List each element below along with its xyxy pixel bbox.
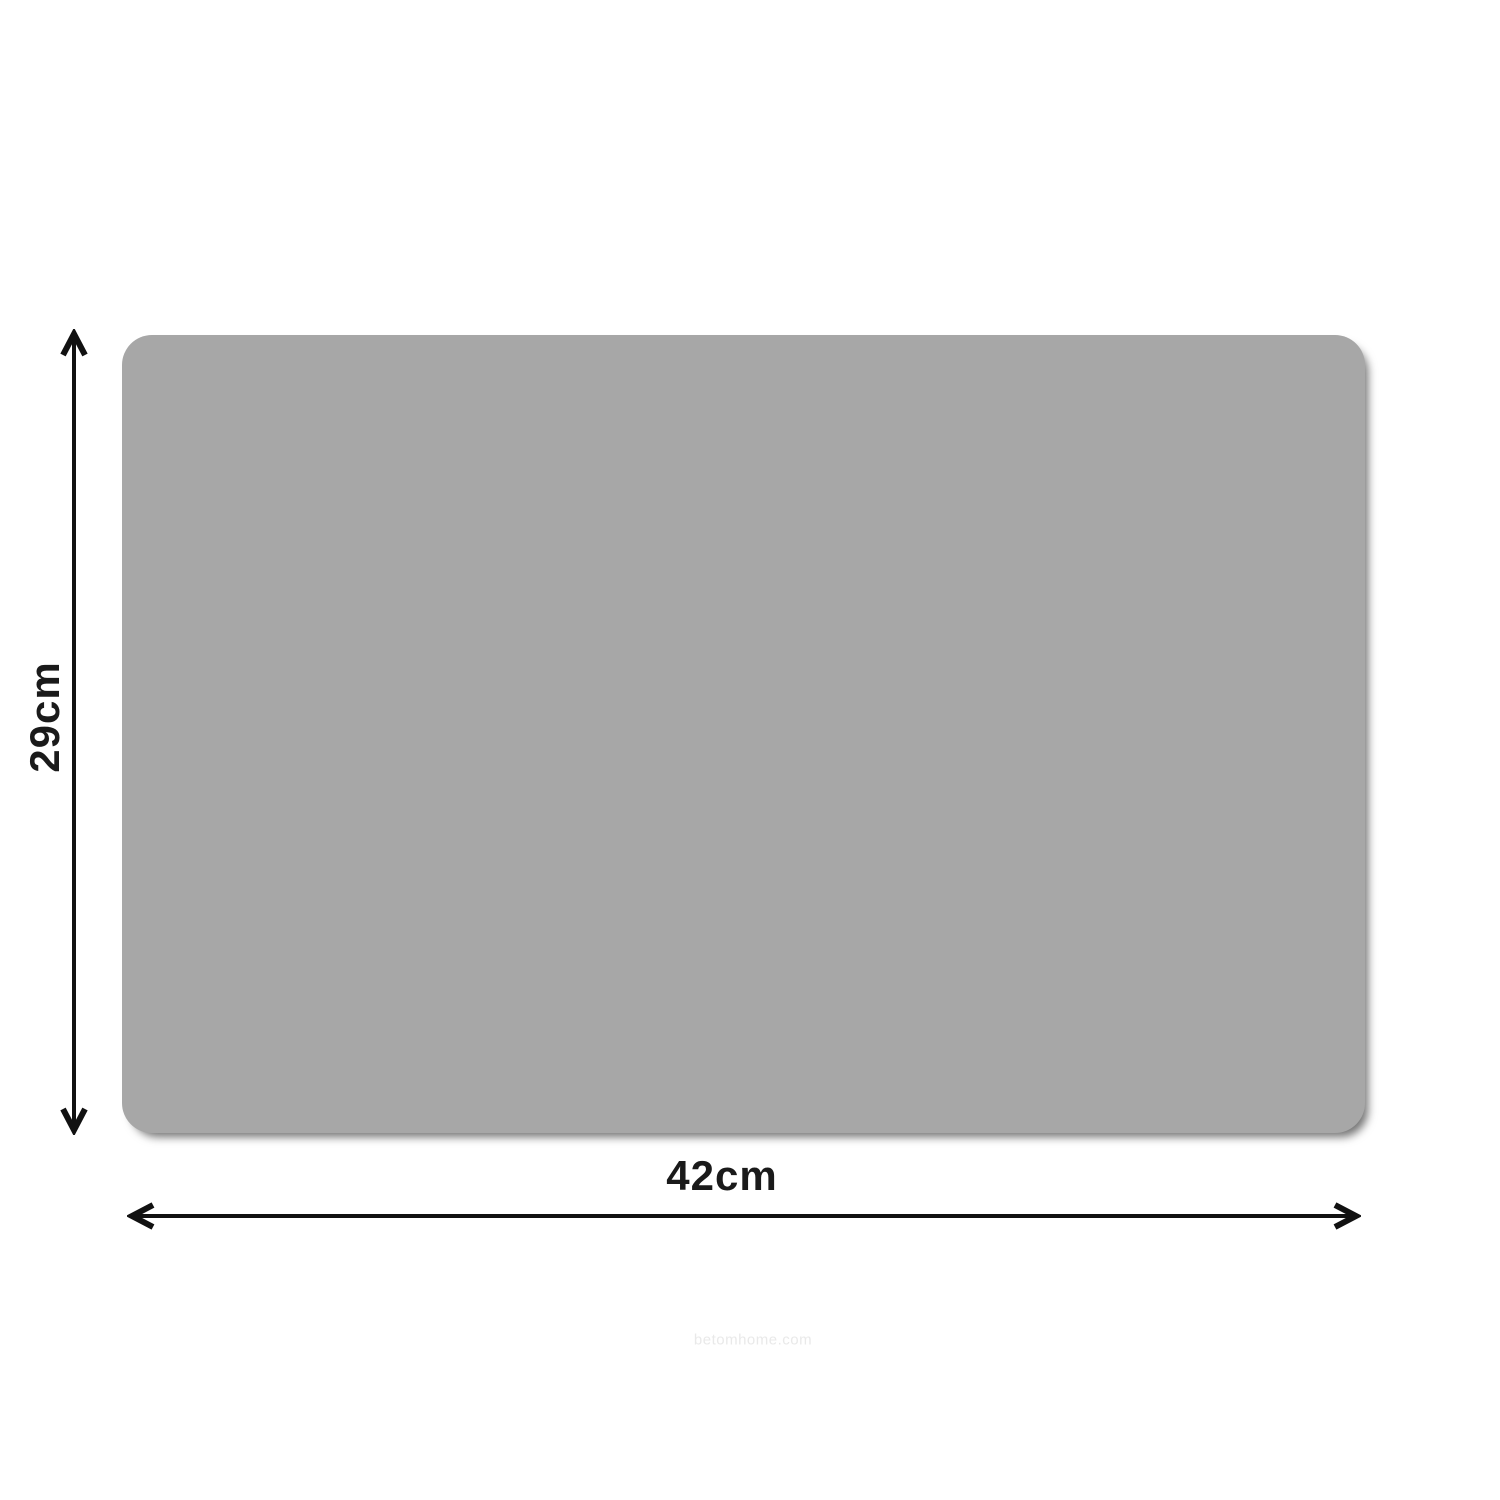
watermark-text: betomhome.com (694, 1332, 812, 1349)
placemat-surface (122, 335, 1365, 1133)
diagram-canvas: 29cm 42cm betomhome.com (0, 0, 1500, 1500)
width-dimension-label: 42cm (666, 1152, 777, 1200)
height-dimension-label: 29cm (21, 661, 69, 772)
width-dimension-arrow-icon (127, 1198, 1361, 1234)
